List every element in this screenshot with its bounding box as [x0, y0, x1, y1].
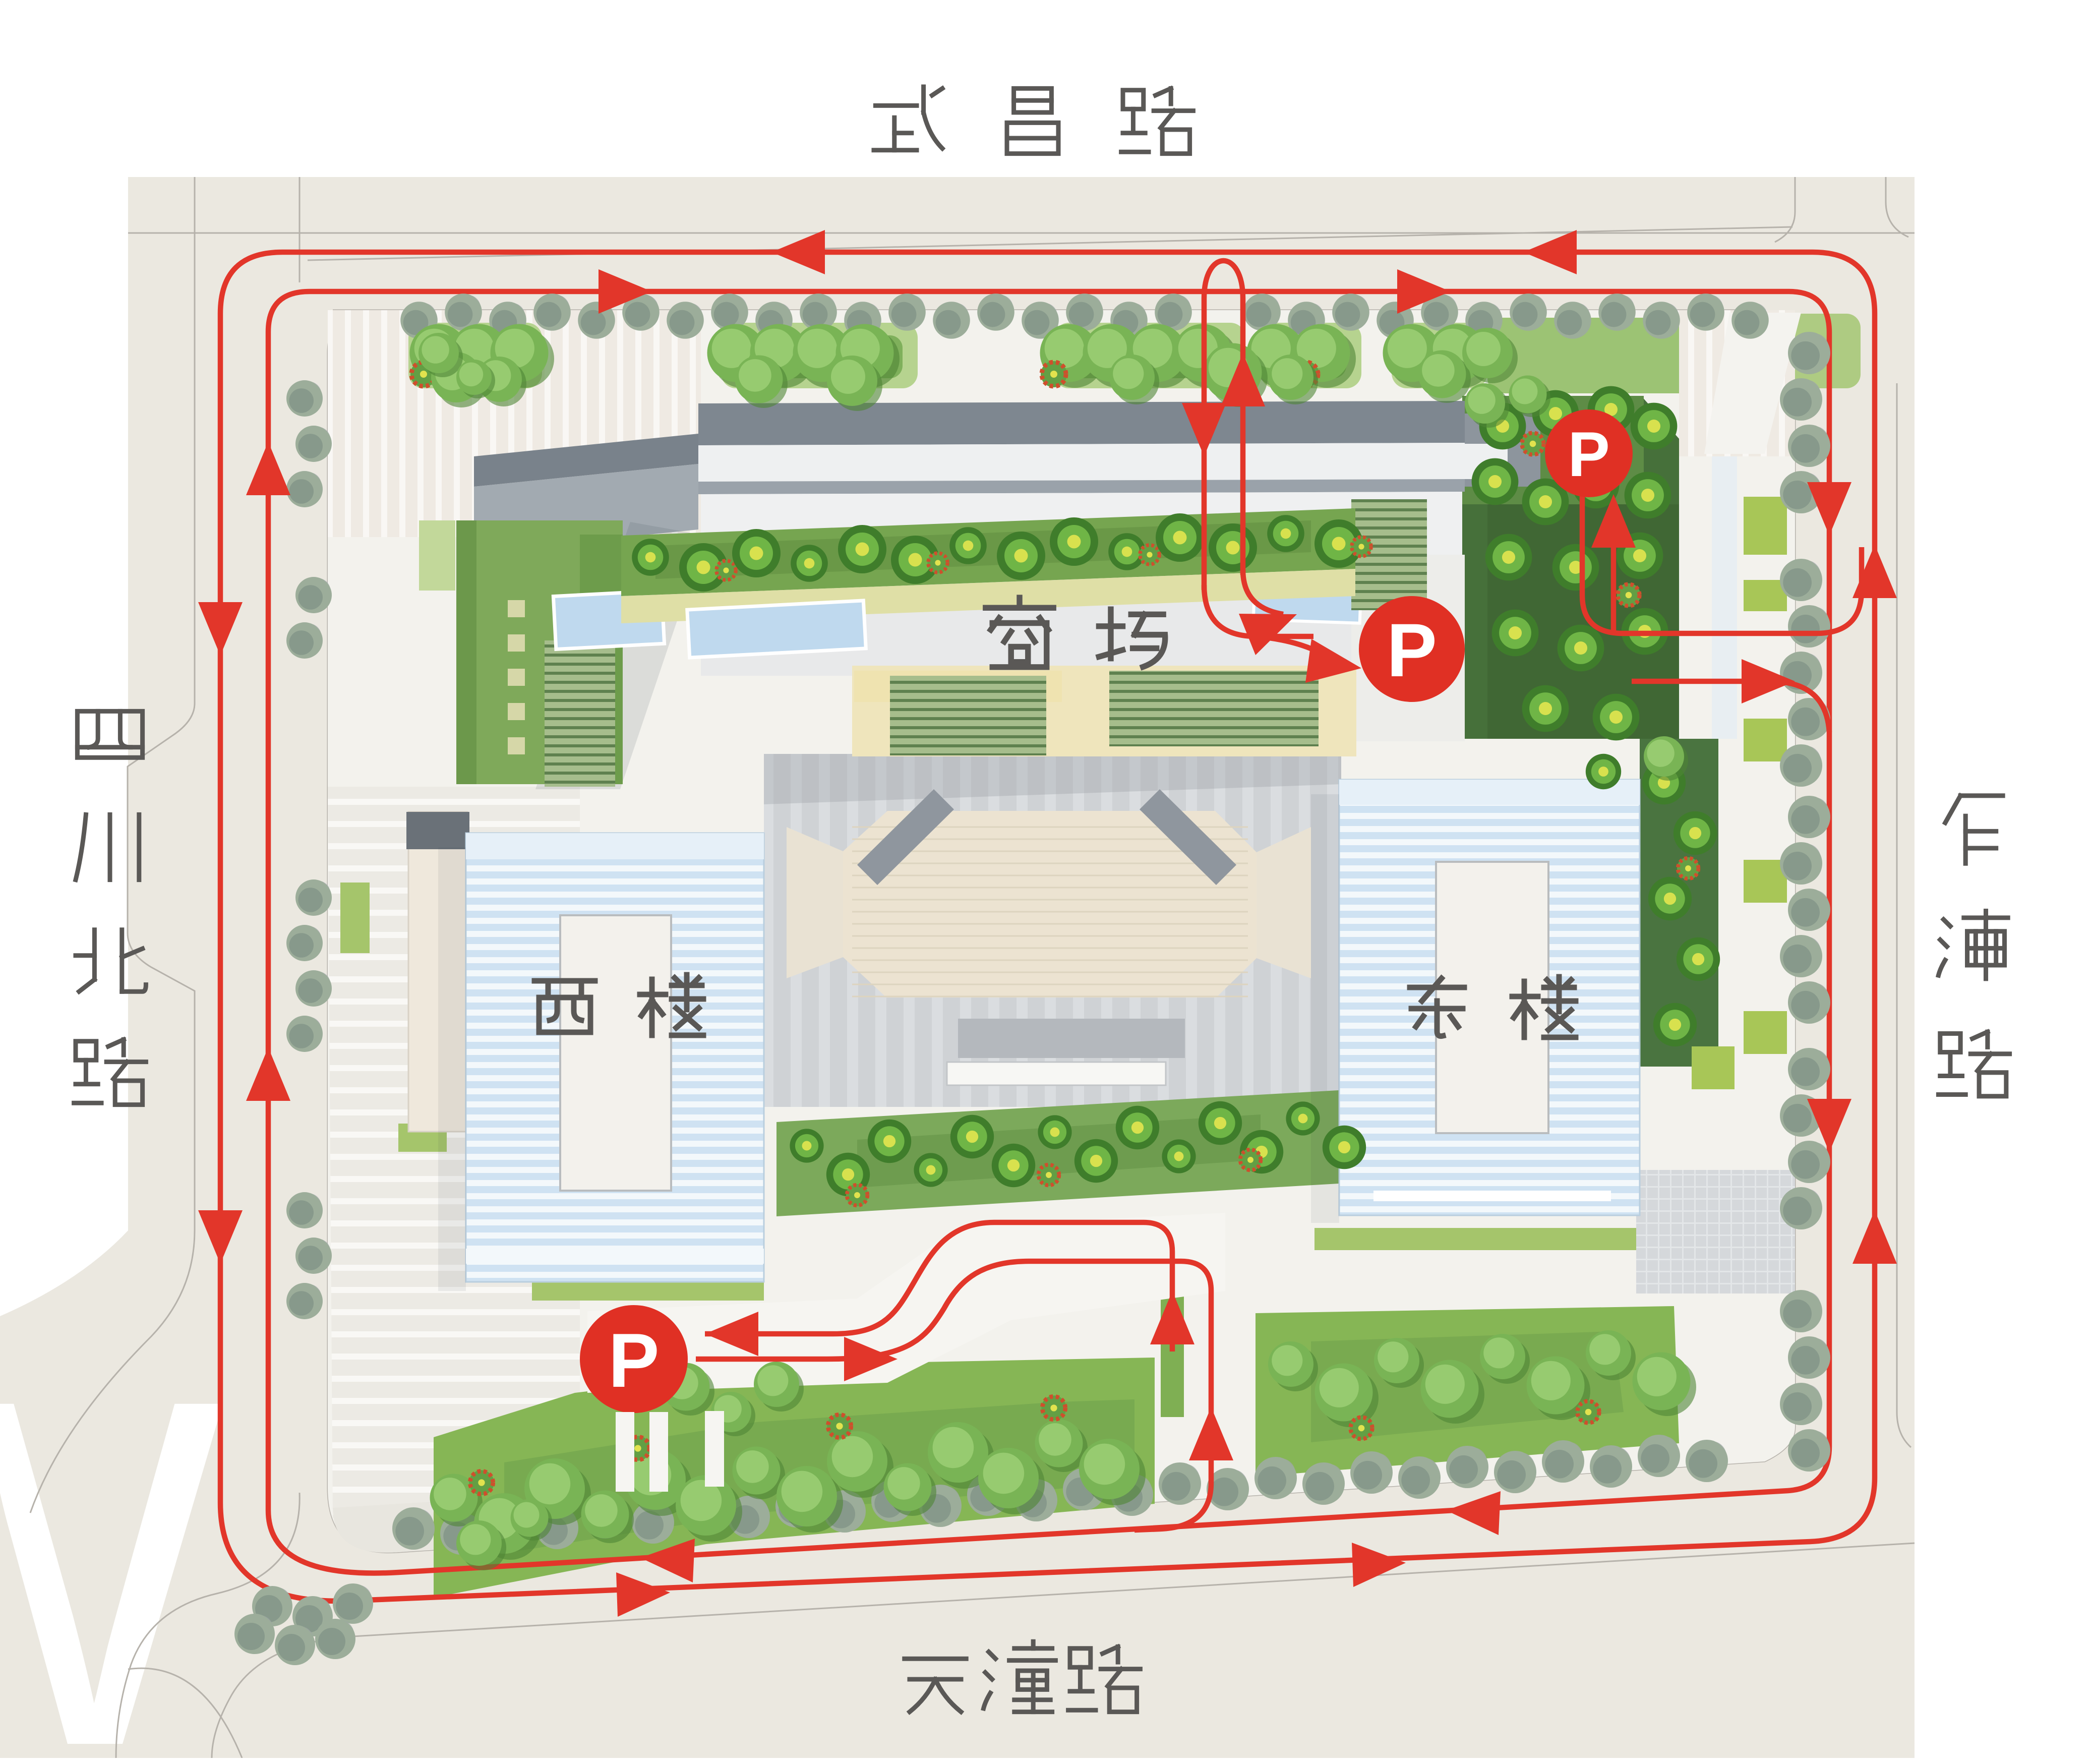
svg-text:W: W: [0, 1297, 229, 1764]
svg-text:P: P: [1568, 420, 1609, 490]
svg-text:P: P: [1387, 608, 1437, 692]
svg-text:P: P: [608, 1318, 659, 1403]
